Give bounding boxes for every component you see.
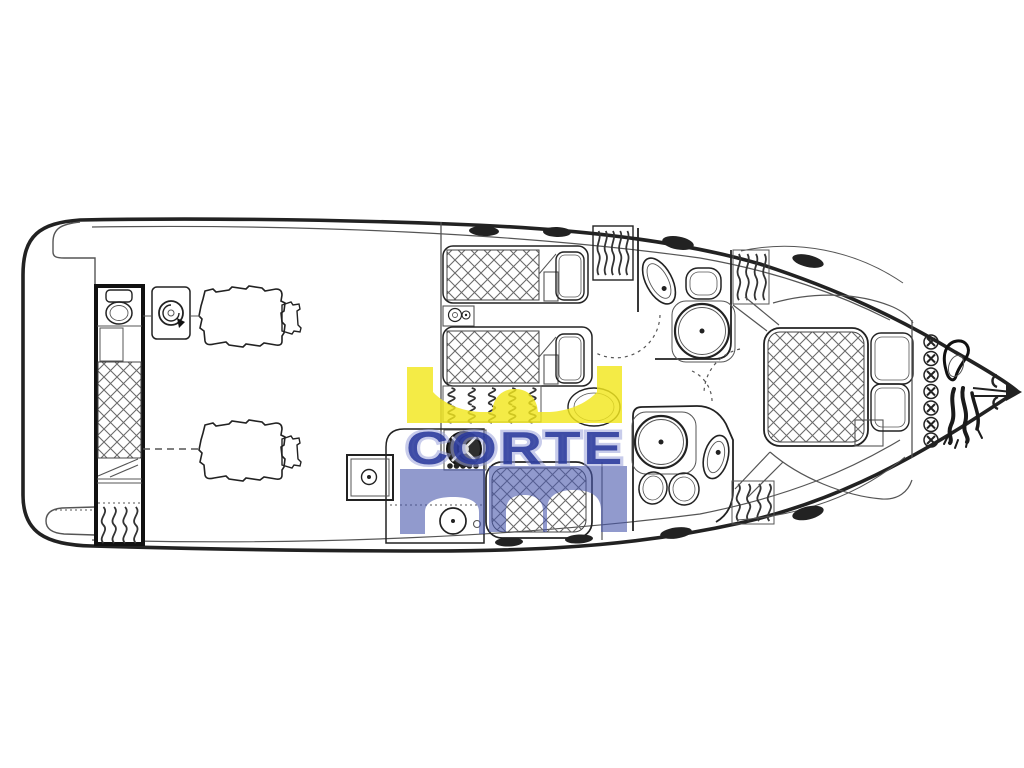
upper-engine xyxy=(199,286,301,347)
toilet xyxy=(686,268,721,299)
boat-floor-plan: CORTE xyxy=(0,0,1024,768)
anchor-shackle-icon xyxy=(944,341,968,380)
anchor-chain-icon xyxy=(924,335,938,447)
aft-head xyxy=(632,349,740,531)
double-berth xyxy=(764,328,868,446)
pillow xyxy=(871,333,913,384)
toilet xyxy=(637,470,669,506)
watermark-text: CORTE xyxy=(406,422,625,474)
shower xyxy=(675,304,729,358)
aft-crew-cabin xyxy=(96,286,143,544)
bow-anchor-locker xyxy=(912,320,1022,458)
pillow xyxy=(871,384,909,431)
door-swing-arc xyxy=(596,315,660,358)
bidet xyxy=(667,472,700,507)
crew-berth-cushion xyxy=(98,362,141,458)
bedside-cabinet xyxy=(443,306,474,326)
pillow xyxy=(556,334,584,383)
guest-cabin-upper-berth xyxy=(443,246,588,303)
engine-room xyxy=(143,286,301,481)
deck-hatch-icon xyxy=(565,534,593,544)
generator xyxy=(152,287,190,339)
side-steps-lower xyxy=(732,481,774,524)
deck-hatch-icon xyxy=(791,252,825,271)
galley-sink xyxy=(440,508,481,534)
door-swing-arc xyxy=(704,349,740,394)
lower-engine xyxy=(199,420,301,481)
companionway-steps xyxy=(593,226,633,280)
deck-plan-drawing: CORTE xyxy=(0,0,1024,768)
guest-cabin-lower-berth xyxy=(443,327,592,386)
watermark-bridge-left-icon xyxy=(400,469,485,534)
washbasin xyxy=(699,433,733,481)
shower xyxy=(635,416,687,468)
swim-platform xyxy=(46,507,95,535)
door-swing-arc xyxy=(692,371,712,404)
washbasin xyxy=(636,253,682,309)
pillow xyxy=(556,252,584,300)
